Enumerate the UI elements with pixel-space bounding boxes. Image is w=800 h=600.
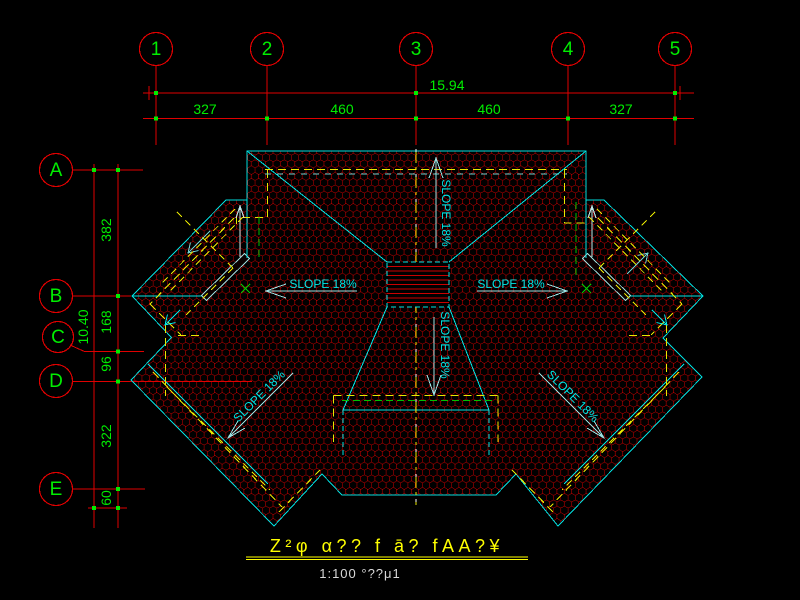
svg-text:168: 168 — [98, 310, 114, 334]
svg-text:SLOPE 18%: SLOPE 18% — [438, 311, 452, 379]
svg-text:SLOPE 18%: SLOPE 18% — [439, 179, 453, 247]
svg-text:Z²φ α?? f ā? fΑΑ?¥: Z²φ α?? f ā? fΑΑ?¥ — [270, 536, 504, 556]
svg-text:5: 5 — [670, 39, 681, 60]
svg-text:96: 96 — [98, 356, 114, 372]
svg-text:SLOPE 18%: SLOPE 18% — [289, 277, 357, 291]
svg-text:1:100 °??μ1: 1:100 °??μ1 — [319, 566, 401, 581]
svg-text:322: 322 — [98, 424, 114, 448]
svg-text:327: 327 — [193, 101, 217, 117]
svg-text:60: 60 — [98, 490, 114, 506]
svg-text:382: 382 — [98, 218, 114, 242]
svg-text:10.40: 10.40 — [75, 309, 91, 344]
svg-text:327: 327 — [609, 101, 633, 117]
svg-text:SLOPE 18%: SLOPE 18% — [477, 277, 545, 291]
svg-text:1: 1 — [151, 39, 162, 60]
svg-text:460: 460 — [330, 101, 354, 117]
svg-text:4: 4 — [563, 39, 574, 60]
svg-text:D: D — [49, 371, 63, 392]
svg-text:A: A — [50, 160, 63, 181]
svg-text:2: 2 — [262, 39, 273, 60]
svg-text:B: B — [50, 286, 63, 307]
svg-text:E: E — [50, 479, 63, 500]
svg-text:15.94: 15.94 — [429, 77, 464, 93]
svg-text:C: C — [51, 327, 65, 348]
svg-text:460: 460 — [477, 101, 501, 117]
svg-text:3: 3 — [411, 39, 422, 60]
